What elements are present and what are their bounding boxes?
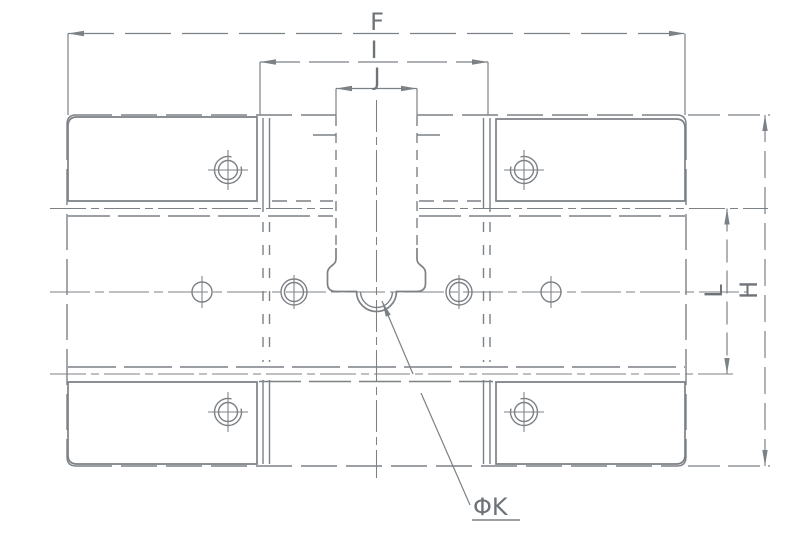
- dim-label-h: H: [735, 281, 763, 299]
- arrowhead: [401, 86, 417, 91]
- diameter-callout: ΦK: [382, 301, 520, 521]
- rail-hole-counterbore-left: [281, 275, 307, 309]
- dim-label-i: I: [370, 36, 377, 64]
- dim-label-j: J: [371, 63, 380, 91]
- thread-hole-bottom-right: [504, 392, 544, 432]
- linear-rail-drawing: F I J H L ΦK: [0, 0, 800, 533]
- arrowhead: [336, 86, 352, 91]
- dimension-l: L: [700, 209, 730, 375]
- technical-drawing-canvas: F I J H L ΦK: [0, 0, 800, 533]
- thread-hole-top-left: [208, 150, 248, 190]
- arrowhead: [669, 31, 685, 36]
- thread-hole-top-right: [504, 150, 544, 190]
- arrowhead: [762, 450, 767, 466]
- dim-label-l: L: [700, 284, 728, 298]
- arrowhead: [762, 115, 767, 131]
- dim-label-phi-k: ΦK: [473, 493, 509, 521]
- corner-block-bottom-left: [68, 382, 257, 464]
- thread-hole-bottom-left: [208, 392, 248, 432]
- arrowhead: [472, 59, 488, 64]
- center-lines: [50, 100, 768, 478]
- arrowhead: [724, 358, 729, 374]
- arrowhead: [68, 31, 84, 36]
- rail-hole-counterbore-right: [446, 275, 472, 309]
- dim-label-f: F: [370, 8, 384, 36]
- arrowhead: [260, 59, 276, 64]
- corner-block-top-left: [68, 117, 257, 201]
- arrowhead: [724, 209, 729, 225]
